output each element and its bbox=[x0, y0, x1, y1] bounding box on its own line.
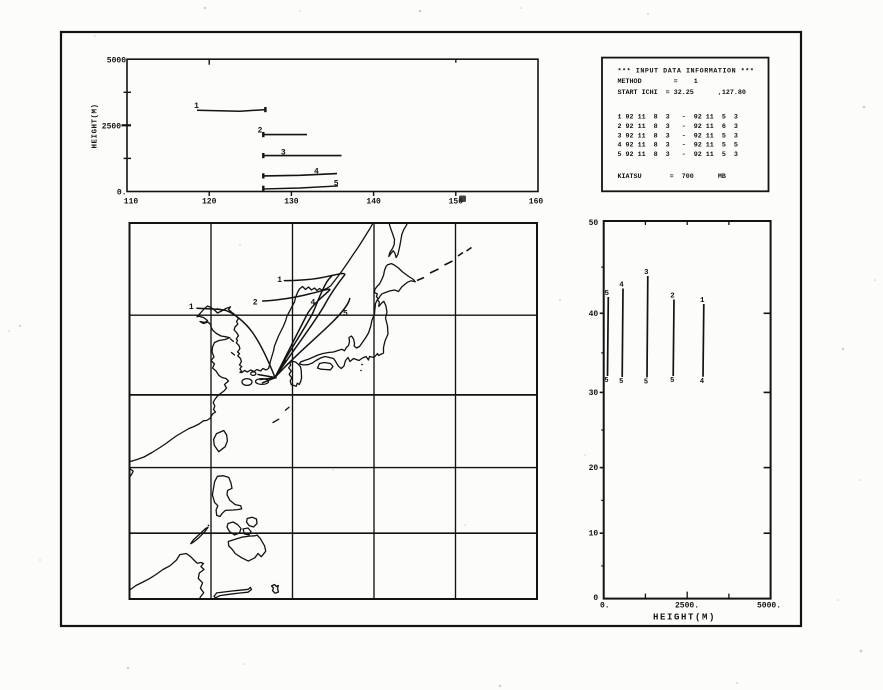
svg-text:START ICHI = 32.25 ,127.: START ICHI = 32.25 ,127.80 bbox=[618, 89, 746, 97]
svg-text:2 92 11 8 3 - 92 11 6 3: 2 92 11 8 3 - 92 11 6 3 bbox=[618, 123, 738, 131]
svg-text:2500: 2500 bbox=[102, 122, 121, 131]
svg-text:0.: 0. bbox=[600, 602, 610, 611]
svg-text:3 92 11 8 3 - 92 11 5 3: 3 92 11 8 3 - 92 11 5 3 bbox=[618, 132, 738, 140]
svg-text:2500.: 2500. bbox=[675, 602, 699, 611]
svg-text:4: 4 bbox=[619, 281, 624, 289]
svg-text:HEIGHT(M): HEIGHT(M) bbox=[653, 613, 716, 623]
svg-text:50: 50 bbox=[589, 219, 599, 228]
svg-text:110: 110 bbox=[124, 198, 139, 207]
svg-text:1: 1 bbox=[700, 297, 705, 305]
svg-text:*** INPUT DATA INFORMATION ***: *** INPUT DATA INFORMATION *** bbox=[618, 68, 755, 76]
svg-text:5: 5 bbox=[619, 378, 623, 386]
svg-text:0: 0 bbox=[593, 594, 598, 603]
svg-text:5: 5 bbox=[644, 379, 648, 387]
svg-text:20: 20 bbox=[589, 464, 599, 473]
svg-text:4: 4 bbox=[310, 298, 315, 307]
svg-text:2: 2 bbox=[253, 298, 258, 307]
svg-text:3: 3 bbox=[644, 269, 649, 277]
svg-text:5: 5 bbox=[605, 290, 610, 298]
svg-text:5: 5 bbox=[334, 179, 339, 188]
svg-text:140: 140 bbox=[366, 198, 381, 207]
svg-text:1: 1 bbox=[194, 102, 199, 111]
svg-text:5000.: 5000. bbox=[757, 602, 781, 611]
svg-text:160: 160 bbox=[529, 198, 544, 207]
svg-text:1 92 11 8 3 - 92 11 5 3: 1 92 11 8 3 - 92 11 5 3 bbox=[618, 114, 738, 122]
svg-text:120: 120 bbox=[202, 198, 217, 207]
svg-text:3: 3 bbox=[281, 148, 286, 157]
svg-text:40: 40 bbox=[589, 310, 599, 319]
svg-text:1: 1 bbox=[189, 303, 194, 312]
svg-text:30: 30 bbox=[589, 389, 599, 398]
svg-text:5: 5 bbox=[604, 377, 608, 385]
svg-text:5000: 5000 bbox=[107, 57, 126, 66]
svg-text:5: 5 bbox=[343, 309, 348, 318]
svg-text:0.: 0. bbox=[117, 189, 127, 198]
svg-text:2: 2 bbox=[258, 127, 263, 136]
svg-text:KIATSU = 700 MB: KIATSU = 700 MB bbox=[618, 173, 726, 181]
svg-text:1: 1 bbox=[277, 276, 282, 285]
svg-text:4: 4 bbox=[314, 168, 319, 177]
svg-text:HEIGHT(M): HEIGHT(M) bbox=[92, 103, 100, 148]
svg-text:5: 5 bbox=[670, 377, 674, 385]
svg-text:4: 4 bbox=[700, 378, 704, 386]
svg-text:130: 130 bbox=[284, 198, 299, 207]
svg-text:4 92 11 8 3 - 92 11 5 5: 4 92 11 8 3 - 92 11 5 5 bbox=[618, 142, 738, 150]
svg-text:5 92 11 8 3 - 92 11 5 3: 5 92 11 8 3 - 92 11 5 3 bbox=[618, 151, 738, 159]
svg-text:METHOD = 1: METHOD = 1 bbox=[618, 78, 698, 86]
svg-text:10: 10 bbox=[589, 530, 599, 539]
svg-text:2: 2 bbox=[670, 292, 675, 300]
